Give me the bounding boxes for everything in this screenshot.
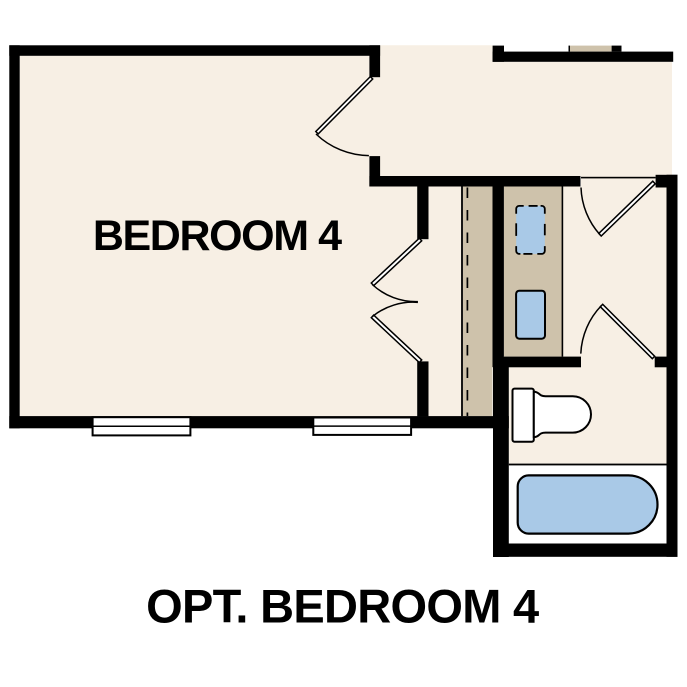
svg-text:OPT. BEDROOM 4: OPT. BEDROOM 4 <box>146 580 539 633</box>
svg-text:BEDROOM 4: BEDROOM 4 <box>93 212 342 260</box>
